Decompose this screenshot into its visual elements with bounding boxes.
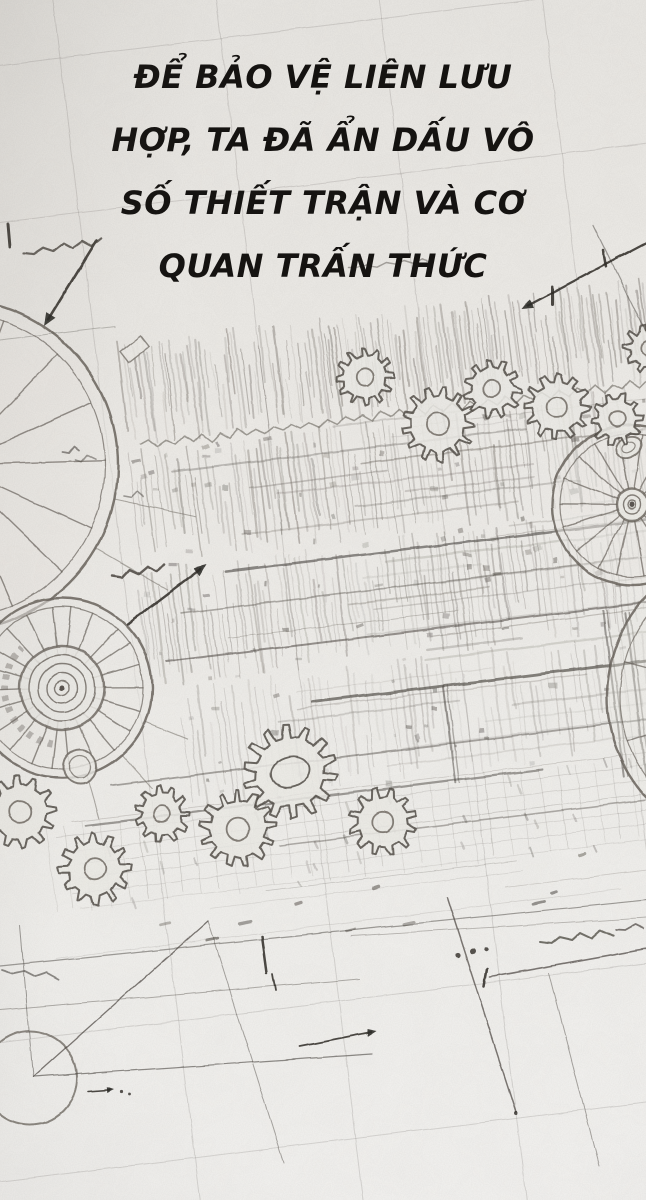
gear [623,325,646,372]
gear [0,776,57,848]
comic-panel: ĐỂ BẢO VỆ LIÊN LƯU HỢP, TA ĐÃ ẨN DẤU VÔ … [0,0,646,1200]
wheel [552,425,646,585]
gear [58,832,132,905]
gear [244,725,338,819]
dialogue-line-1: ĐỂ BẢO VỆ LIÊN LƯU [0,46,646,109]
dialogue-line-4: QUAN TRẤN THỨC [0,235,646,298]
gear [349,788,417,855]
gear [463,360,522,418]
gear [135,785,190,841]
dialogue-text: ĐỂ BẢO VỆ LIÊN LƯU HỢP, TA ĐÃ ẨN DẤU VÔ … [0,46,646,298]
dialogue-line-2: HỢP, TA ĐÃ ẨN DẤU VÔ [0,109,646,172]
dialogue-line-3: SỐ THIẾT TRẬN VÀ CƠ [0,172,646,235]
